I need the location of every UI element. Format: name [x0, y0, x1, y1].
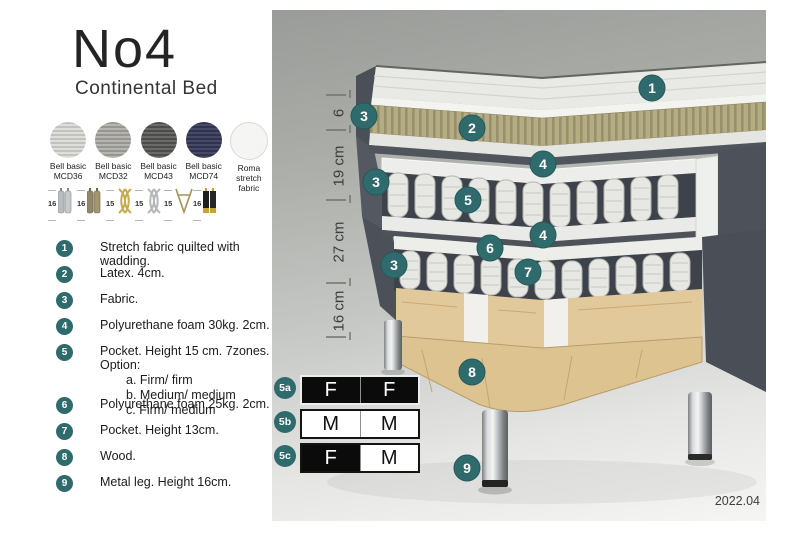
svg-text:4: 4	[539, 227, 547, 243]
chrome-cylinder-legs-icon	[58, 188, 74, 219]
leg-height: 16	[48, 199, 56, 208]
fabric-swatch-icon	[186, 122, 222, 158]
callout-option: a. Firm/ firm	[126, 373, 272, 387]
black-gold-legs-icon	[203, 188, 218, 219]
svg-text:2: 2	[468, 120, 476, 136]
callout-text: Latex. 4cm.	[100, 266, 165, 280]
fabric-swatch: Bell basicMCD32	[91, 122, 135, 193]
svg-text:1: 1	[648, 80, 656, 96]
callout-text: Wood.	[100, 449, 136, 463]
diagram-badge-3: 3	[351, 103, 377, 129]
fabric-swatch-icon	[230, 122, 268, 160]
fabric-name: Bell basic	[186, 161, 222, 171]
diagram-badge-6: 6	[477, 235, 503, 261]
infographic-page: No4 Continental Bed Bell basicMCD36 Bell…	[0, 0, 800, 533]
firmness-bar: F M	[300, 443, 420, 473]
hairpin-leg-icon	[174, 188, 194, 219]
version-label: 2022.04	[715, 494, 760, 508]
svg-text:5: 5	[464, 192, 472, 208]
dimension-label: 6	[330, 109, 347, 117]
callout-item: 9 Metal leg. Height 16cm.	[56, 475, 231, 492]
callout-badge: 6	[56, 397, 73, 414]
silver-twist-leg-icon	[145, 188, 163, 219]
firmness-row-5c: 5c F M	[274, 443, 424, 469]
leg-option: 15	[106, 186, 135, 226]
bed-base-side-right	[702, 229, 766, 392]
callout-badge: 1	[56, 240, 73, 257]
firmness-badge: 5c	[274, 445, 296, 467]
fabric-swatch: Romastretch fabric	[227, 122, 271, 193]
dimension-label: 27 cm	[330, 222, 347, 263]
fabric-name: Bell basic	[50, 161, 86, 171]
svg-text:7: 7	[524, 264, 532, 280]
callout-badge: 3	[56, 292, 73, 309]
svg-text:3: 3	[360, 108, 368, 124]
callout-item: 6 Polyurethane foam 25kg. 2cm.	[56, 397, 270, 414]
callout-badge: 5	[56, 344, 73, 361]
callout-item: 4 Polyurethane foam 30kg. 2cm.	[56, 318, 270, 335]
dimension-label: 19 cm	[330, 146, 347, 187]
firmness-bar: M M	[300, 409, 420, 439]
firmness-badge: 5b	[274, 411, 296, 433]
spec-column: No4 Continental Bed Bell basicMCD36 Bell…	[0, 0, 272, 533]
callout-item: 1 Stretch fabric quilted with wadding.	[56, 240, 272, 268]
leg-option: 16	[193, 186, 222, 226]
callout-text: Pocket. Height 13cm.	[100, 423, 219, 437]
callout-text: Metal leg. Height 16cm.	[100, 475, 231, 489]
callout-badge: 4	[56, 318, 73, 335]
fabric-name: Bell basic	[140, 161, 176, 171]
callout-badge: 7	[56, 423, 73, 440]
fabric-swatch-icon	[50, 122, 86, 158]
diagram-badge-7: 7	[515, 259, 541, 285]
fabric-swatch: Bell basicMCD36	[46, 122, 90, 193]
bed-cutaway-panel: 6 19 cm 27 cm 16 cm 1 2 3 3 3 4 4 5 6 7 …	[272, 10, 766, 521]
diagram-badge-8: 8	[459, 359, 485, 385]
callout-item: 8 Wood.	[56, 449, 136, 466]
callout-item: 7 Pocket. Height 13cm.	[56, 423, 219, 440]
wood-rim	[396, 336, 702, 412]
diagram-badge-3: 3	[363, 169, 389, 195]
firmness-cell: M	[360, 411, 419, 437]
fabric-swatch: Bell basicMCD43	[136, 122, 180, 193]
diagram-badge-5: 5	[455, 187, 481, 213]
diagram-badge-4: 4	[530, 151, 556, 177]
firmness-badge: 5a	[274, 377, 296, 399]
fabric-swatch-icon	[95, 122, 131, 158]
diagram-badge-4: 4	[530, 222, 556, 248]
diagram-badge-9: 9	[454, 455, 480, 481]
svg-text:4: 4	[539, 156, 547, 172]
fabric-code: MCD36	[54, 171, 83, 181]
diagram-badge-2: 2	[459, 115, 485, 141]
metal-leg-right	[688, 392, 712, 460]
fabric-swatch-icon	[141, 122, 177, 158]
callout-badge: 8	[56, 449, 73, 466]
leg-height: 16	[77, 199, 85, 208]
svg-text:8: 8	[468, 364, 476, 380]
slat-gap	[464, 293, 488, 343]
leg-height: 15	[135, 199, 143, 208]
metal-leg-back	[384, 320, 402, 370]
leg-option: 15	[164, 186, 193, 226]
fabric-code: MCD32	[99, 171, 128, 181]
fabric-name: Roma	[238, 163, 261, 173]
fabric-swatches: Bell basicMCD36 Bell basicMCD32 Bell bas…	[46, 122, 272, 193]
firmness-cell: M	[302, 411, 360, 437]
diagram-badge-1: 1	[639, 75, 665, 101]
svg-text:3: 3	[390, 257, 398, 273]
gold-twist-leg-icon	[116, 188, 134, 219]
callout-badge: 2	[56, 266, 73, 283]
fabric-swatch: Bell basicMCD74	[182, 122, 226, 193]
callout-text: Polyurethane foam 25kg. 2cm.	[100, 397, 270, 411]
leg-height: 15	[164, 199, 172, 208]
bronze-cylinder-legs-icon	[87, 188, 103, 219]
firmness-row-5a: 5a F F	[274, 375, 424, 401]
foam-corner-post	[696, 156, 718, 242]
callout-text: Pocket. Height 15 cm. 7zones. Option:	[100, 344, 272, 372]
firmness-cell: M	[360, 445, 419, 471]
firmness-cell: F	[302, 377, 360, 403]
callout-text: Polyurethane foam 30kg. 2cm.	[100, 318, 270, 332]
product-subtitle: Continental Bed	[75, 78, 218, 100]
callout-text: Stretch fabric quilted with wadding.	[100, 240, 272, 268]
slat-gap	[544, 298, 568, 348]
callout-text: Fabric.	[100, 292, 138, 306]
leg-option: 16	[77, 186, 106, 226]
callout-item: 2 Latex. 4cm.	[56, 266, 165, 283]
svg-text:3: 3	[372, 174, 380, 190]
callout-item: 3 Fabric.	[56, 292, 138, 309]
leg-options: 16 16 15 15	[48, 186, 268, 226]
fabric-code: MCD74	[189, 171, 218, 181]
leg-option: 15	[135, 186, 164, 226]
metal-leg-front	[482, 410, 508, 486]
leg-option: 16	[48, 186, 77, 226]
firmness-bar: F F	[300, 375, 420, 405]
firmness-row-5b: 5b M M	[274, 409, 424, 435]
fabric-name: Bell basic	[95, 161, 131, 171]
product-title: No4	[72, 18, 177, 80]
svg-text:9: 9	[463, 460, 471, 476]
diagram-badge-3: 3	[381, 252, 407, 278]
bed-side-fabric-right	[718, 145, 766, 242]
callout-badge: 9	[56, 475, 73, 492]
firmness-cell: F	[302, 445, 360, 471]
firmness-cell: F	[360, 377, 419, 403]
dimension-label: 16 cm	[330, 291, 347, 332]
fabric-code: MCD43	[144, 171, 173, 181]
leg-height: 16	[193, 199, 201, 208]
leg-height: 15	[106, 199, 114, 208]
svg-text:6: 6	[486, 240, 494, 256]
